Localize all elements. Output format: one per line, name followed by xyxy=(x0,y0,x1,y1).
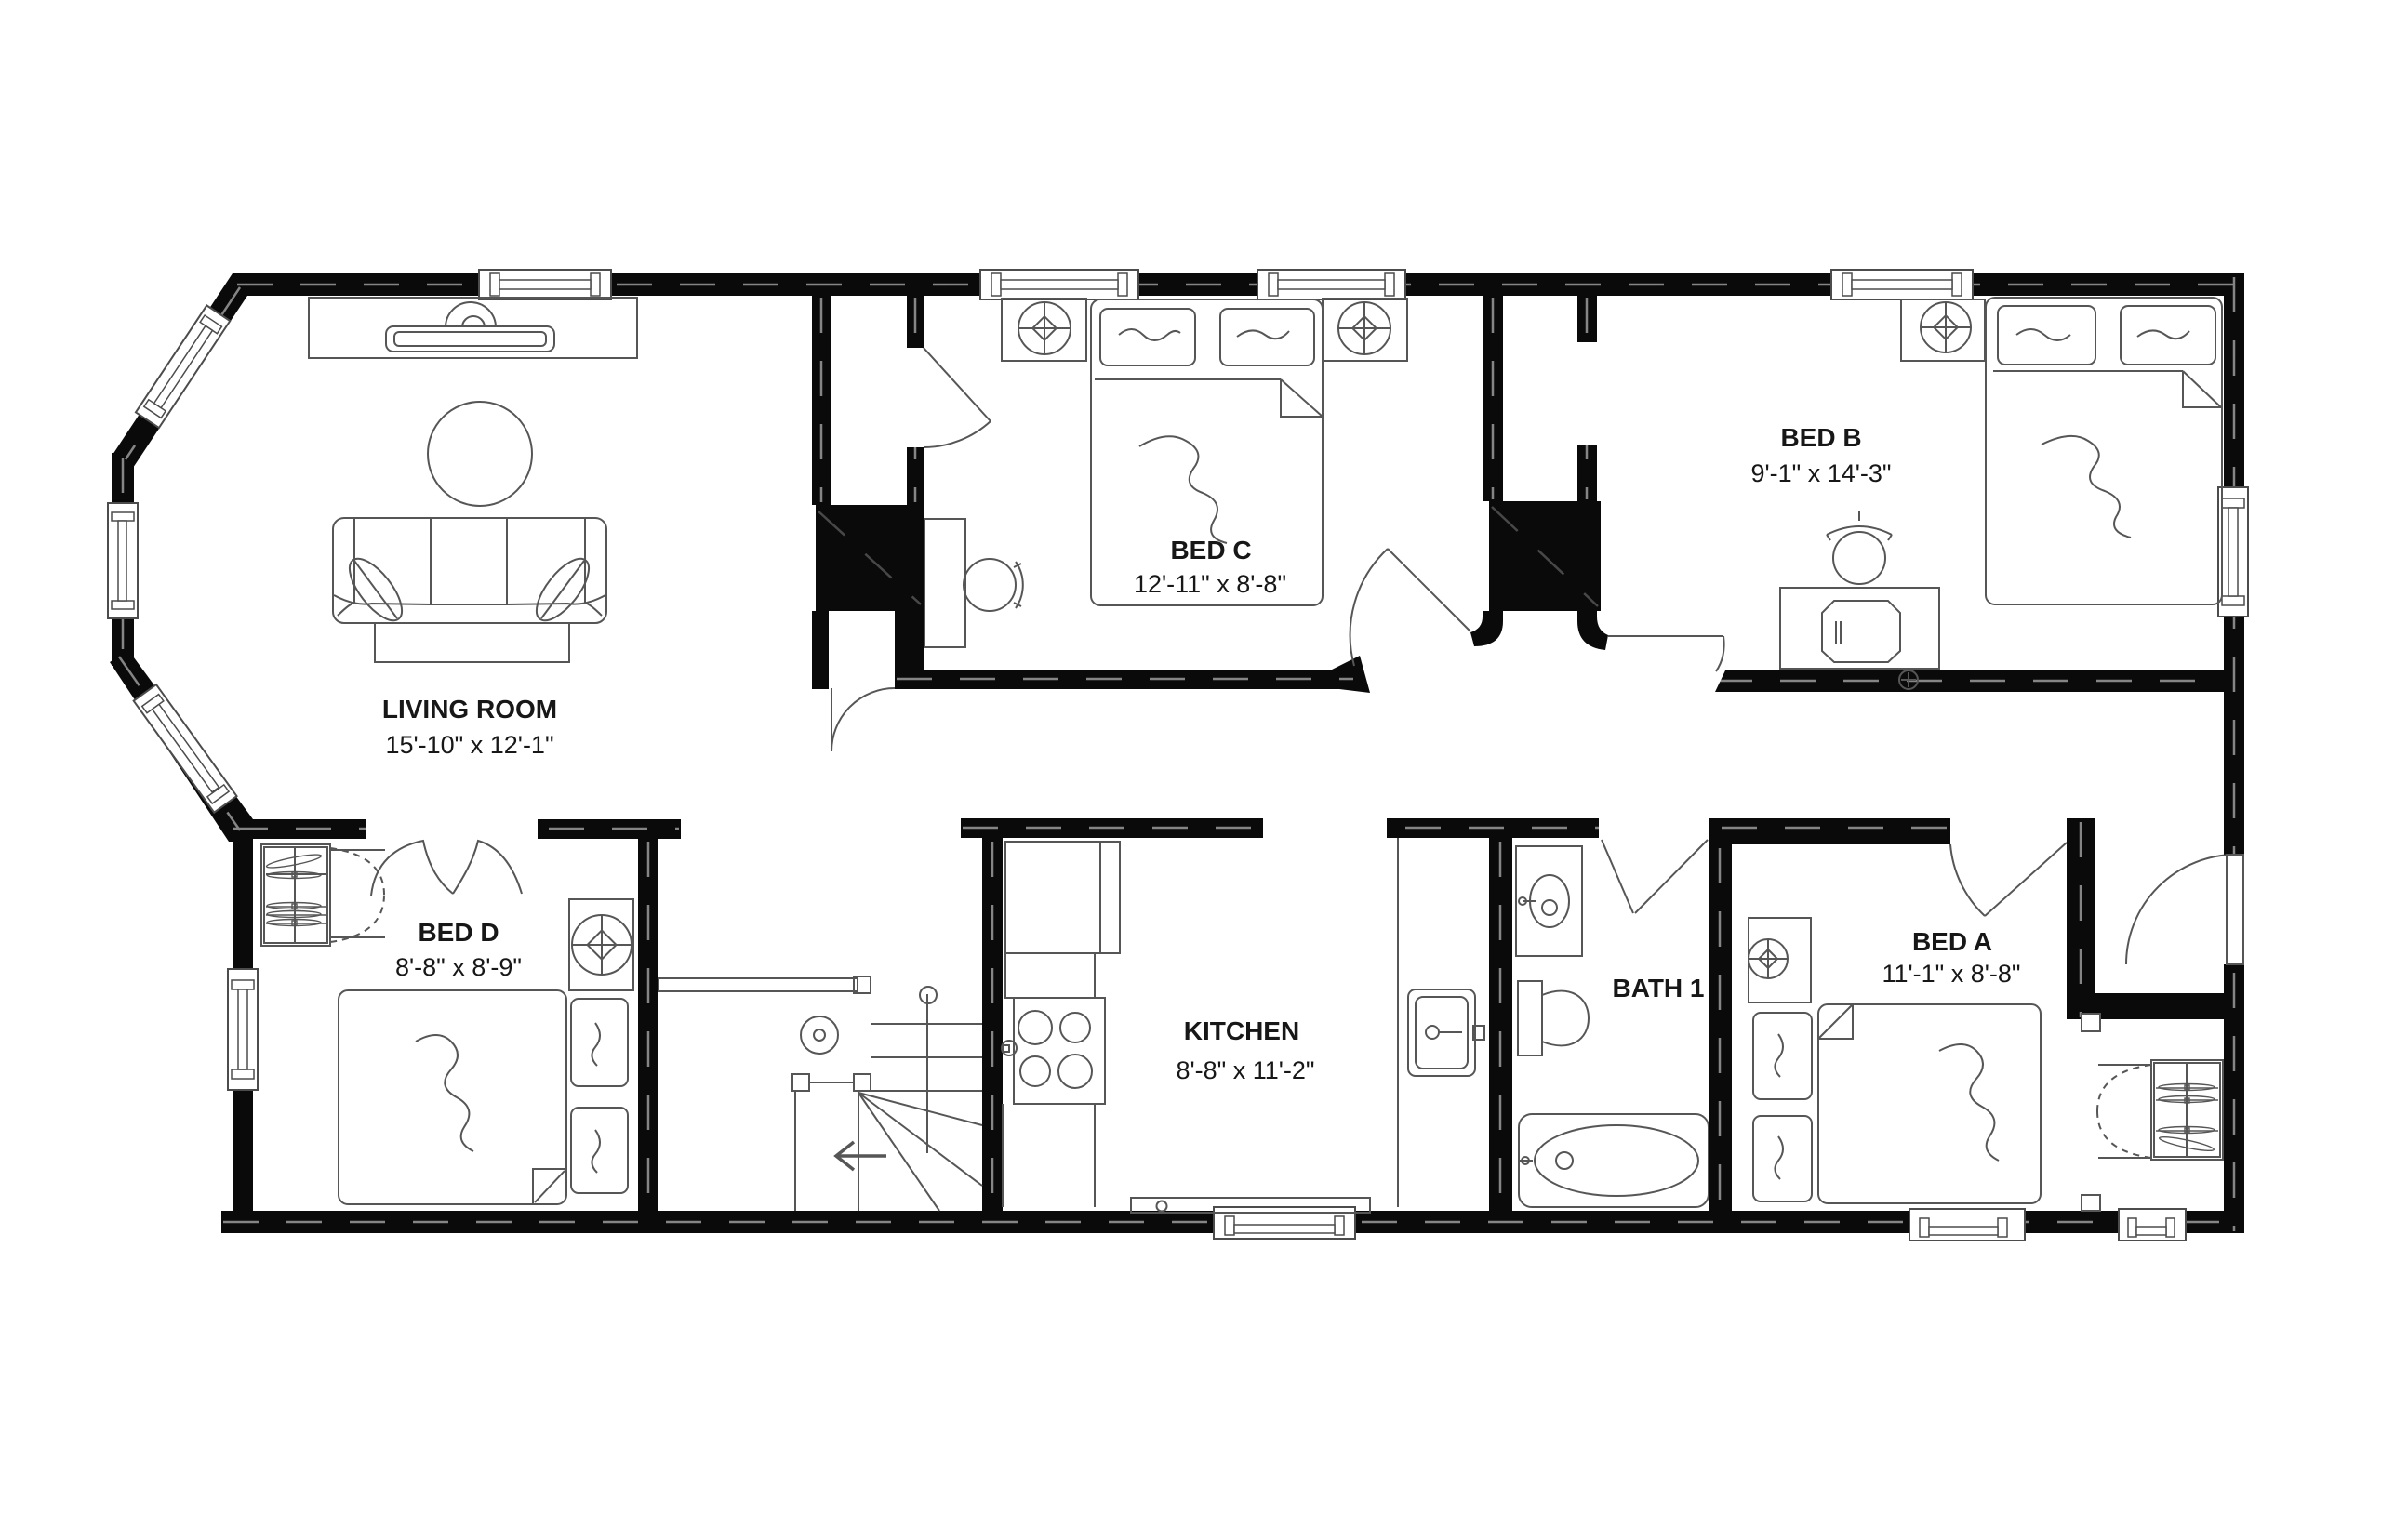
svg-text:12'-11" x 8'-8": 12'-11" x 8'-8" xyxy=(1134,570,1286,598)
svg-text:15'-10" x 12'-1": 15'-10" x 12'-1" xyxy=(385,731,553,759)
svg-text:BATH 1: BATH 1 xyxy=(1612,974,1704,1002)
svg-text:8'-8" x 8'-9": 8'-8" x 8'-9" xyxy=(395,953,522,981)
svg-text:8'-8" x 11'-2": 8'-8" x 11'-2" xyxy=(1176,1056,1314,1084)
svg-text:KITCHEN: KITCHEN xyxy=(1184,1016,1299,1045)
svg-text:11'-1" x 8'-8": 11'-1" x 8'-8" xyxy=(1882,960,2020,988)
svg-text:BED A: BED A xyxy=(1912,927,1992,956)
svg-text:BED B: BED B xyxy=(1780,423,1861,452)
svg-text:BED C: BED C xyxy=(1170,536,1251,564)
svg-text:LIVING ROOM: LIVING ROOM xyxy=(382,695,557,724)
svg-text:BED D: BED D xyxy=(418,918,499,947)
svg-text:9'-1" x 14'-3": 9'-1" x 14'-3" xyxy=(1750,459,1891,487)
